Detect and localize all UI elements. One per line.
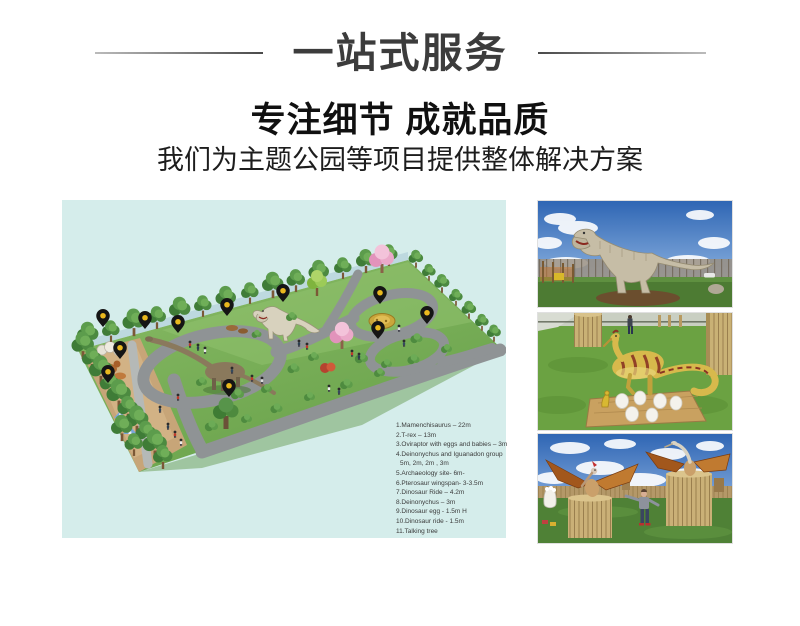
play-item [554,273,564,280]
wood-tower-left [568,495,612,539]
photo-oviraptor-eggs [537,312,733,431]
legend-item-continued: 5m, 2m, 2m , 3m [396,459,506,469]
photo-t-rex-svg [538,201,732,307]
white-car [704,273,715,278]
legend-item: 2.T-rex – 13m [396,431,506,441]
legend-item: 6.Pterosaur wingspan- 3-3.5m [396,479,506,489]
legend-item: 7.Dinosaur Ride – 4.2m [396,488,506,498]
legend-item: 11.Talking tree [396,527,506,537]
map-legend: 1.Mamenchisaurus – 22m 2.T-rex – 13m 3.O… [396,421,506,536]
headline: 专注细节 成就品质 [0,92,800,143]
legend-item: 3.Oviraptor with eggs and babies – 3m [396,440,506,450]
promo-page: 一站式服务 专注细节 成就品质 我们为主题公园等项目提供整体解决方案 [0,0,800,626]
legend-item: 1.Mamenchisaurus – 22m [396,421,506,431]
subheadline: 我们为主题公园等项目提供整体解决方案 [0,138,800,177]
park-map-illustration: 1.Mamenchisaurus – 22m 2.T-rex – 13m 3.O… [62,200,506,538]
rock [708,284,724,294]
egg-decor [544,486,556,508]
wooden-palisade-right [706,313,732,375]
photo-oviraptor-svg [538,313,732,430]
legend-item: 4.Deinonychus and Iguanadon group [396,450,506,460]
photo-pterosaurs-svg [538,434,732,543]
title-divider-left [95,52,263,54]
banner-title: 一站式服务 [293,30,508,76]
wooden-palisade-left [574,313,602,347]
photo-t-rex [537,200,733,308]
photo-pterosaurs [537,433,733,544]
legend-item: 10.Dinosaur ride - 1.5m [396,517,506,527]
legend-item: 9.Dinosaur egg - 1.5m H [396,507,506,517]
dirt-mound [596,290,680,306]
title-divider-right [538,52,706,54]
banner-title-row: 一站式服务 [0,30,800,76]
legend-item: 5.Archaeology site- 6m- [396,469,506,479]
wood-tower-right [666,471,712,527]
legend-item: 8.Deinonychus – 3m [396,498,506,508]
